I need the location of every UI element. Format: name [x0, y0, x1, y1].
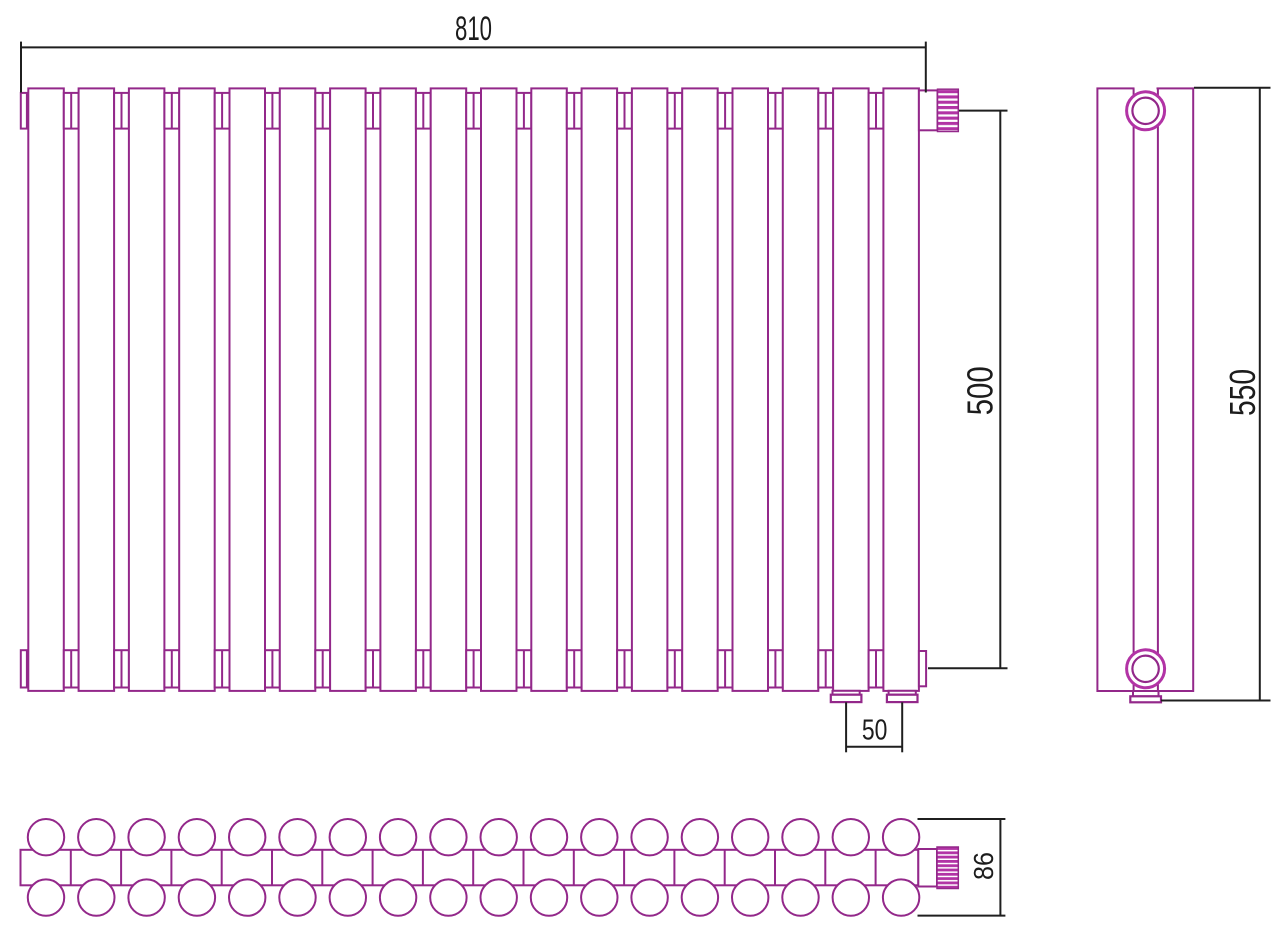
svg-text:50: 50: [862, 714, 888, 746]
svg-text:86: 86: [968, 852, 999, 880]
svg-text:810: 810: [455, 10, 492, 48]
svg-text:500: 500: [960, 366, 1001, 415]
svg-text:550: 550: [1222, 369, 1263, 416]
